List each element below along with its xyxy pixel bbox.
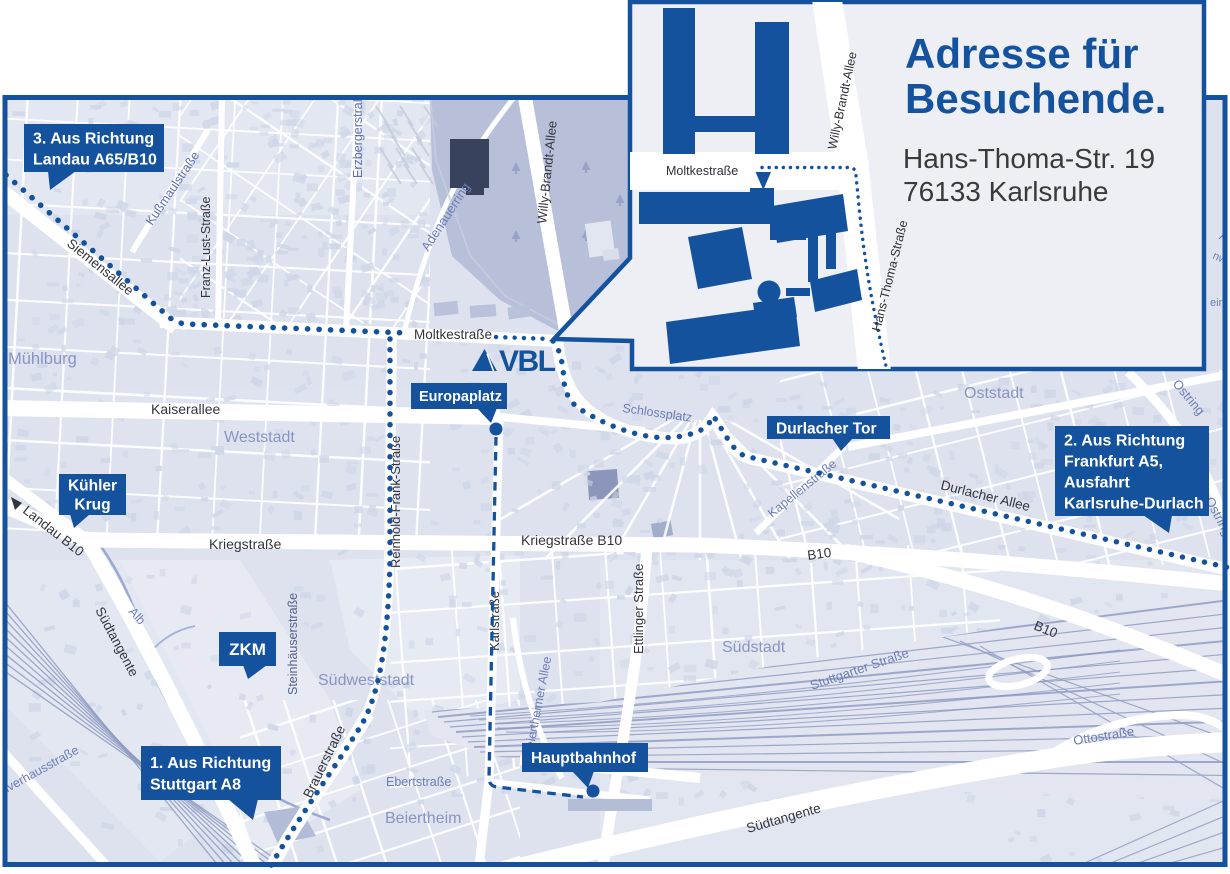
- svg-text:VBL: VBL: [499, 345, 556, 378]
- svg-text:Hauptbahnhof: Hauptbahnhof: [531, 750, 637, 767]
- svg-text:Beiertheim: Beiertheim: [385, 810, 461, 827]
- svg-text:Moltkestraße: Moltkestraße: [414, 327, 492, 342]
- svg-text:ZKM: ZKM: [229, 640, 266, 659]
- svg-text:Europaplatz: Europaplatz: [419, 389, 502, 405]
- svg-text:1. Aus Richtung: 1. Aus Richtung: [150, 755, 271, 772]
- svg-text:Hans-Thoma-Str. 19: Hans-Thoma-Str. 19: [903, 143, 1155, 174]
- svg-text:Oststadt: Oststadt: [964, 385, 1024, 402]
- svg-text:Kriegstraße: Kriegstraße: [209, 536, 282, 552]
- svg-text:ein: ein: [1210, 297, 1225, 309]
- svg-text:Krug: Krug: [74, 497, 110, 514]
- svg-text:Adresse für: Adresse für: [905, 30, 1138, 77]
- svg-text:76133 Karlsruhe: 76133 Karlsruhe: [903, 176, 1108, 207]
- svg-text:Franz-Lust-Straße: Franz-Lust-Straße: [199, 197, 213, 298]
- svg-text:Erzbergerstraße: Erzbergerstraße: [351, 88, 365, 178]
- svg-text:Südstadt: Südstadt: [722, 639, 786, 656]
- svg-text:Moltkestraße: Moltkestraße: [666, 164, 738, 178]
- svg-text:Frankfurt A5,: Frankfurt A5,: [1064, 453, 1163, 470]
- svg-text:Weststadt: Weststadt: [224, 429, 295, 446]
- svg-text:Stuttgart A8: Stuttgart A8: [150, 777, 241, 794]
- svg-text:Kühler: Kühler: [68, 478, 117, 495]
- svg-text:Südweststadt: Südweststadt: [318, 672, 415, 689]
- svg-text:Besuchende.: Besuchende.: [905, 75, 1166, 122]
- svg-text:Kriegstraße B10: Kriegstraße B10: [521, 532, 622, 548]
- svg-text:Mühlburg: Mühlburg: [8, 350, 77, 368]
- svg-text:2. Aus Richtung: 2. Aus Richtung: [1064, 432, 1185, 449]
- svg-text:Ausfahrt: Ausfahrt: [1064, 474, 1130, 491]
- svg-text:Steinhäuserstraße: Steinhäuserstraße: [286, 593, 300, 695]
- svg-text:Karlsruhe-Durlach: Karlsruhe-Durlach: [1064, 495, 1204, 512]
- svg-text:Ettlinger Straße: Ettlinger Straße: [631, 564, 646, 654]
- svg-text:Ebertstraße: Ebertstraße: [386, 775, 451, 789]
- svg-text:Kaiserallee: Kaiserallee: [151, 401, 220, 417]
- svg-text:Landau A65/B10: Landau A65/B10: [33, 151, 157, 168]
- svg-text:3. Aus Richtung: 3. Aus Richtung: [33, 130, 154, 147]
- svg-text:Karlstraße: Karlstraße: [487, 591, 502, 651]
- svg-text:Durlacher Tor: Durlacher Tor: [776, 421, 877, 438]
